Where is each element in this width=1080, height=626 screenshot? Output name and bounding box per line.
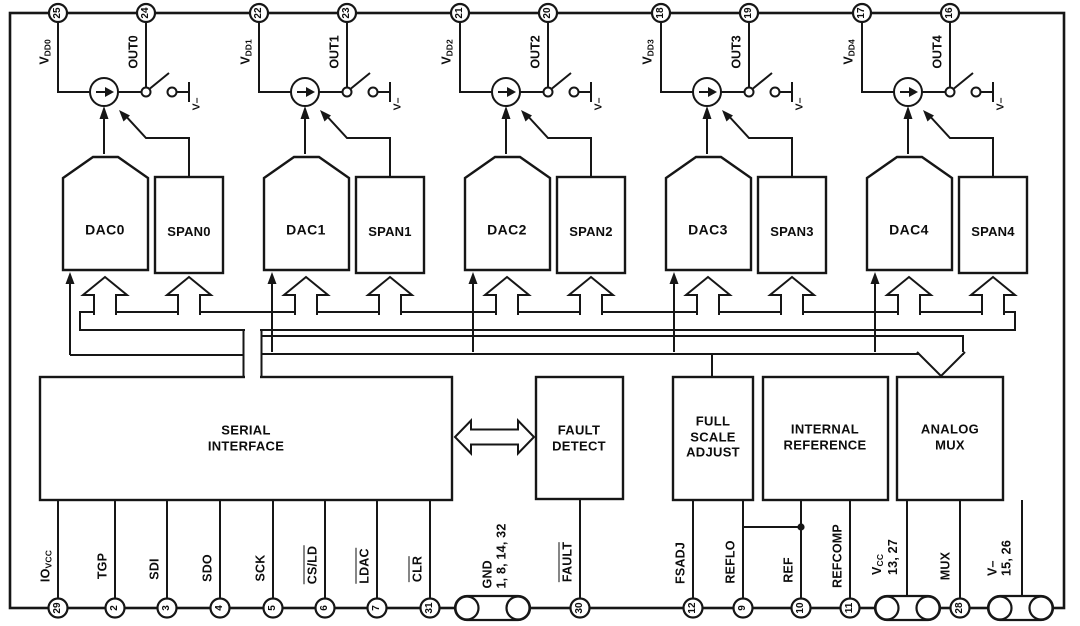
pin-label-vdd2: VDD2 xyxy=(439,39,454,64)
pin-label-vdd1: VDD1 xyxy=(238,39,253,64)
pin-label-out0: OUT0 xyxy=(127,35,142,68)
junction-dot xyxy=(797,523,804,530)
pin-number-sdi: 3 xyxy=(161,605,173,611)
switch-contact xyxy=(168,88,177,97)
block-diagram: 25 24 22 23 21 20 18 19 17 16 VDD0 OUT0 … xyxy=(0,0,1080,626)
pin-label-csld: CS/LD xyxy=(306,546,321,585)
pin-number-clr: 31 xyxy=(424,602,436,613)
pin-label-reflo: REFLO xyxy=(724,540,739,583)
bus-down-arrow xyxy=(917,352,965,376)
pin-label-vcc: VCC13, 27 xyxy=(870,539,900,575)
full-scale-adjust-label: FULL SCALE ADJUST xyxy=(686,414,740,461)
pin-label-sdo: SDO xyxy=(201,554,216,582)
vminus-rail-label: V– xyxy=(392,98,405,111)
dac4-block xyxy=(867,157,952,270)
pin-number-out0: 24 xyxy=(140,7,152,18)
internal-reference-label: INTERNAL REFERENCE xyxy=(784,421,867,452)
pin-number-vdd2: 21 xyxy=(454,7,466,18)
pin-label-fsadj: FSADJ xyxy=(674,542,689,584)
pin-label-out4: OUT4 xyxy=(931,35,946,68)
pin-number-fault: 30 xyxy=(574,602,586,613)
span4-label: SPAN4 xyxy=(971,224,1014,240)
pin-label-mux: MUX xyxy=(939,552,954,580)
pin-number-reflo: 9 xyxy=(737,605,749,611)
pin-label-vminus: V–15, 26 xyxy=(986,540,1015,576)
pin-number-out3: 19 xyxy=(743,7,755,18)
pin-label-out1: OUT1 xyxy=(328,35,343,68)
serial-interface-label: SERIAL INTERFACE xyxy=(208,422,284,453)
pin-label-out3: OUT3 xyxy=(730,35,745,68)
pin-number-out1: 23 xyxy=(341,7,353,18)
pin-number-out4: 16 xyxy=(944,7,956,18)
switch-contact xyxy=(544,88,553,97)
switch-contact xyxy=(570,88,579,97)
pin-number-sdo: 4 xyxy=(214,605,226,611)
dac0-label: DAC0 xyxy=(85,222,125,239)
vminus-rail-label: V– xyxy=(794,98,807,111)
diagram-wiring xyxy=(0,0,1080,626)
pin-number-ref: 10 xyxy=(795,602,807,613)
pin-label-ref: REF xyxy=(782,557,797,583)
dac1-label: DAC1 xyxy=(286,222,326,239)
pin-number-tgp: 2 xyxy=(109,605,121,611)
pin-number-vdd1: 22 xyxy=(253,7,265,18)
pin-label-vdd4: VDD4 xyxy=(841,39,856,64)
dac0-block xyxy=(63,157,148,270)
bidirectional-arrow-icon xyxy=(455,421,534,454)
pin-label-sdi: SDI xyxy=(148,558,163,579)
pin-number-mux: 28 xyxy=(954,602,966,613)
pin-label-tgp: TGP xyxy=(96,553,111,579)
pin-label-fault: FAULT xyxy=(561,542,576,582)
pin-number-vdd3: 18 xyxy=(655,7,667,18)
bus-serial-stub xyxy=(244,327,262,379)
pin-label-refcomp: REFCOMP xyxy=(831,524,846,588)
pin-number-iovcc: 29 xyxy=(52,602,64,613)
dac2-label: DAC2 xyxy=(487,222,527,239)
switch-contact xyxy=(343,88,352,97)
span1-label: SPAN1 xyxy=(368,224,411,240)
pin-label-ldac: LDAC xyxy=(358,548,373,584)
pin-label-sck: SCK xyxy=(254,555,269,582)
vminus-rail-label: V– xyxy=(191,98,204,111)
dac1-block xyxy=(264,157,349,270)
pin-label-vdd0: VDD0 xyxy=(37,39,52,64)
dac2-block xyxy=(465,157,550,270)
pin-label-vdd3: VDD3 xyxy=(640,39,655,64)
switch-contact xyxy=(745,88,754,97)
dac4-label: DAC4 xyxy=(889,222,929,239)
switch-contact xyxy=(771,88,780,97)
pin-number-sck: 5 xyxy=(267,605,279,611)
pin-label-out2: OUT2 xyxy=(529,35,544,68)
vminus-rail-label: V– xyxy=(593,98,606,111)
pin-number-csld: 6 xyxy=(319,605,331,611)
dac3-block xyxy=(666,157,751,270)
pin-number-vdd4: 17 xyxy=(856,7,868,18)
switch-contact xyxy=(946,88,955,97)
span0-label: SPAN0 xyxy=(167,224,210,240)
vminus-rail-label: V– xyxy=(995,98,1008,111)
dac3-label: DAC3 xyxy=(688,222,728,239)
fault-detect-label: FAULT DETECT xyxy=(552,422,606,453)
pin-number-out2: 20 xyxy=(542,7,554,18)
span2-label: SPAN2 xyxy=(569,224,612,240)
switch-contact xyxy=(972,88,981,97)
pin-label-gnd: GND1, 8, 14, 32 xyxy=(481,524,510,589)
pin-label-iovcc: IOVCC xyxy=(38,550,53,582)
pin-number-refcomp: 11 xyxy=(844,603,856,614)
switch-contact xyxy=(142,88,151,97)
pin-label-clr: CLR xyxy=(411,556,426,582)
analog-mux-label: ANALOG MUX xyxy=(921,421,979,452)
pin-number-fsadj: 12 xyxy=(687,602,699,613)
pin-number-ldac: 7 xyxy=(371,605,383,611)
switch-contact xyxy=(369,88,378,97)
pin-number-vdd0: 25 xyxy=(52,7,64,18)
span3-label: SPAN3 xyxy=(770,224,813,240)
data-bus-lower xyxy=(262,336,963,354)
